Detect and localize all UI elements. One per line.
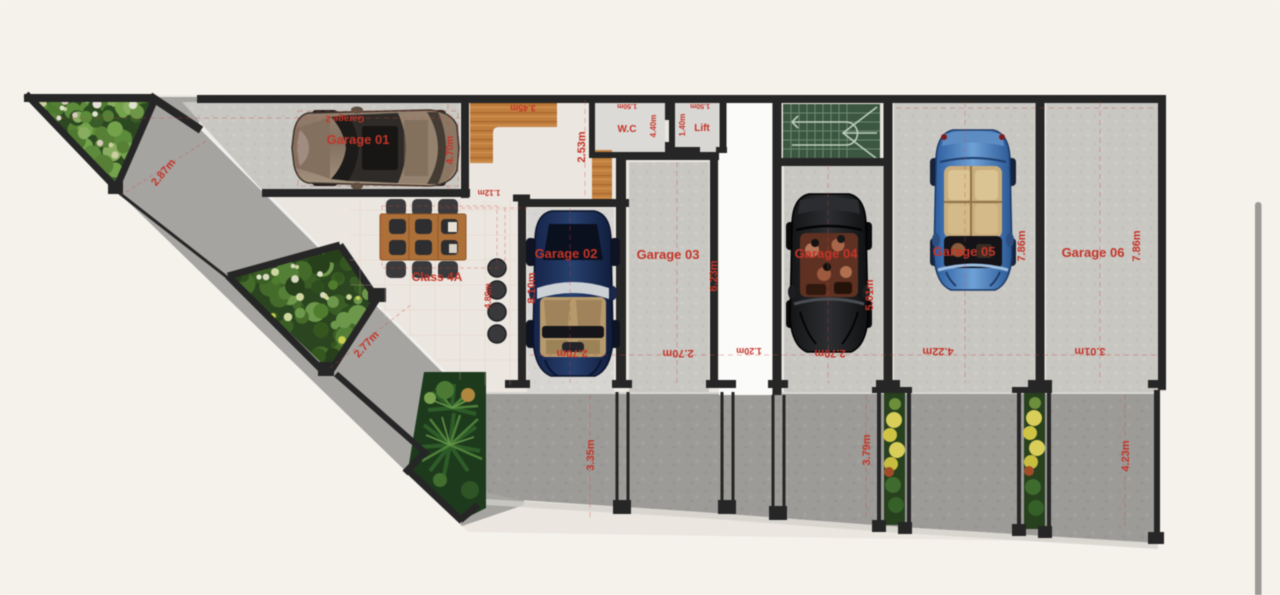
svg-text:2.70m: 2.70m [556, 347, 587, 359]
svg-text:2.70m: 2.70m [662, 347, 693, 359]
svg-text:2.70m: 2.70m [814, 347, 845, 359]
svg-text:Garage 2: Garage 2 [326, 114, 365, 124]
svg-text:4.89m: 4.89m [483, 283, 493, 309]
svg-text:Lift: Lift [694, 123, 710, 134]
svg-text:4.22m: 4.22m [922, 345, 953, 357]
svg-text:3.01m: 3.01m [1074, 345, 1105, 357]
svg-text:Garage 02: Garage 02 [535, 246, 598, 261]
svg-text:1.12m: 1.12m [478, 188, 501, 197]
svg-text:5.01m: 5.01m [864, 279, 876, 310]
svg-text:4.23m: 4.23m [1120, 440, 1132, 471]
svg-text:3.45m: 3.45m [510, 103, 536, 113]
svg-text:Garage 03: Garage 03 [637, 247, 700, 262]
svg-text:1.50m: 1.50m [617, 102, 637, 109]
svg-text:Class 4A: Class 4A [412, 270, 463, 284]
svg-text:4.70m: 4.70m [445, 136, 456, 164]
svg-text:7.86m: 7.86m [1016, 230, 1028, 261]
svg-text:7.86m: 7.86m [1131, 230, 1143, 261]
svg-text:4.40m: 4.40m [649, 115, 658, 138]
svg-text:W.C: W.C [618, 124, 637, 135]
svg-text:1.40m: 1.40m [678, 114, 687, 137]
svg-text:8.10m: 8.10m [526, 272, 538, 303]
svg-text:Garage 01: Garage 01 [327, 132, 390, 147]
svg-text:3.79m: 3.79m [861, 434, 873, 465]
svg-text:Garage 05: Garage 05 [933, 244, 996, 259]
svg-text:2.53m: 2.53m [576, 131, 588, 162]
svg-text:1.20m: 1.20m [736, 346, 762, 356]
svg-text:Garage 04: Garage 04 [795, 246, 859, 261]
svg-text:3.35m: 3.35m [585, 439, 597, 470]
svg-text:6.23m: 6.23m [708, 260, 720, 291]
svg-text:Garage 06: Garage 06 [1062, 245, 1125, 260]
svg-text:1.50m: 1.50m [690, 102, 710, 109]
